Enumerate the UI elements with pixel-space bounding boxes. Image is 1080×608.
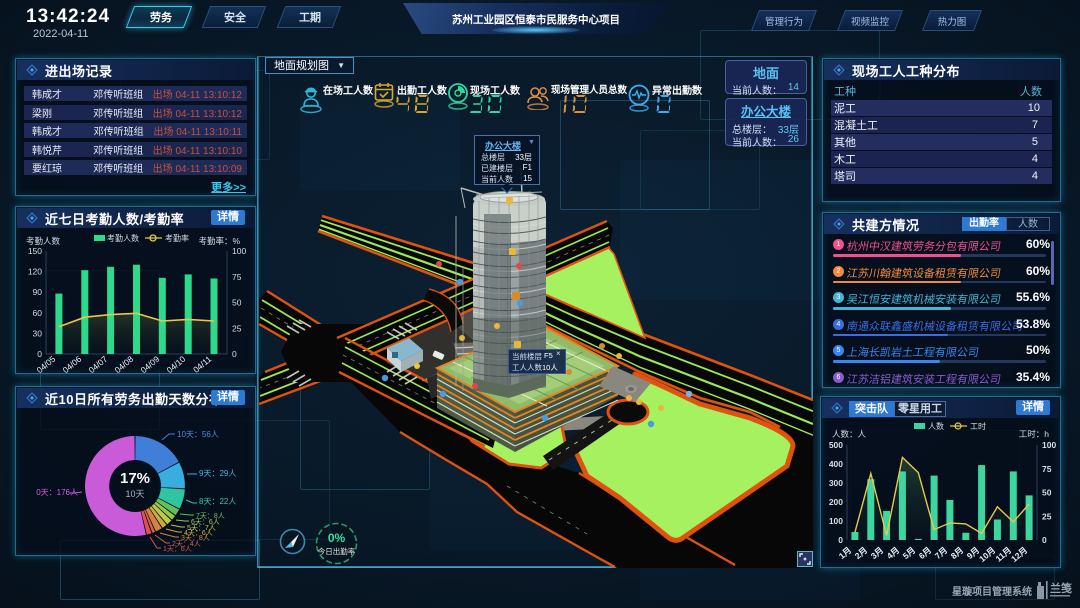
- svg-text:04/09: 04/09: [139, 354, 162, 373]
- svg-text:今日出勤率: 今日出勤率: [318, 546, 356, 556]
- svg-text:04/08: 04/08: [113, 354, 136, 373]
- svg-text:工时: 工时: [970, 421, 986, 431]
- svg-text:考勤人数: 考勤人数: [26, 236, 61, 246]
- svg-text:0天：176人: 0天：176人: [36, 488, 78, 497]
- svg-text:25: 25: [232, 323, 242, 333]
- svg-text:10天: 10天: [125, 489, 144, 499]
- svg-text:2月: 2月: [853, 545, 870, 561]
- svg-text:120: 120: [28, 267, 42, 277]
- svg-text:90: 90: [33, 287, 43, 297]
- svg-text:9天：29人: 9天：29人: [199, 469, 236, 478]
- svg-text:75: 75: [232, 272, 242, 282]
- svg-text:25: 25: [1042, 511, 1052, 521]
- svg-text:6月: 6月: [917, 545, 934, 561]
- svg-text:8月: 8月: [949, 545, 966, 561]
- svg-text:1月: 1月: [837, 545, 854, 561]
- svg-text:75: 75: [1042, 464, 1052, 474]
- svg-text:10天：56人: 10天：56人: [177, 430, 219, 439]
- svg-text:200: 200: [829, 497, 843, 507]
- svg-text:50: 50: [232, 298, 242, 308]
- svg-text:考勤率: 考勤率: [165, 233, 189, 243]
- svg-text:0: 0: [1042, 535, 1047, 545]
- svg-text:1天：6人: 1天：6人: [163, 545, 192, 553]
- svg-text:50: 50: [1042, 488, 1052, 498]
- svg-text:100: 100: [1042, 440, 1056, 450]
- svg-text:60: 60: [33, 308, 43, 318]
- svg-text:0%: 0%: [328, 531, 346, 545]
- svg-text:3月: 3月: [869, 545, 886, 561]
- svg-text:04/10: 04/10: [165, 354, 188, 373]
- svg-text:04/07: 04/07: [87, 354, 110, 373]
- svg-text:150: 150: [28, 246, 42, 256]
- svg-text:04/11: 04/11: [191, 354, 213, 373]
- svg-text:30: 30: [33, 328, 43, 338]
- svg-text:5月: 5月: [901, 545, 918, 561]
- svg-text:100: 100: [829, 516, 843, 526]
- svg-text:100: 100: [232, 246, 246, 256]
- svg-text:0: 0: [838, 535, 843, 545]
- svg-text:兰笺: 兰笺: [1050, 581, 1072, 595]
- svg-text:300: 300: [829, 478, 843, 488]
- svg-text:考勤率：%: 考勤率：%: [198, 236, 240, 246]
- svg-text:400: 400: [829, 459, 843, 469]
- svg-text:0: 0: [232, 349, 237, 359]
- svg-text:工时：h: 工时：h: [1019, 429, 1050, 439]
- svg-text:人数：人: 人数：人: [832, 429, 867, 439]
- svg-text:500: 500: [829, 440, 843, 450]
- svg-text:12月: 12月: [1009, 545, 1029, 564]
- svg-text:人数: 人数: [928, 421, 944, 431]
- svg-text:04/06: 04/06: [61, 354, 84, 373]
- svg-text:4月: 4月: [885, 545, 902, 561]
- svg-text:8天：22人: 8天：22人: [199, 497, 236, 506]
- svg-text:17%: 17%: [120, 470, 150, 487]
- svg-text:考勤人数: 考勤人数: [107, 233, 139, 243]
- svg-text:7月: 7月: [933, 545, 950, 561]
- svg-text:0: 0: [37, 349, 42, 359]
